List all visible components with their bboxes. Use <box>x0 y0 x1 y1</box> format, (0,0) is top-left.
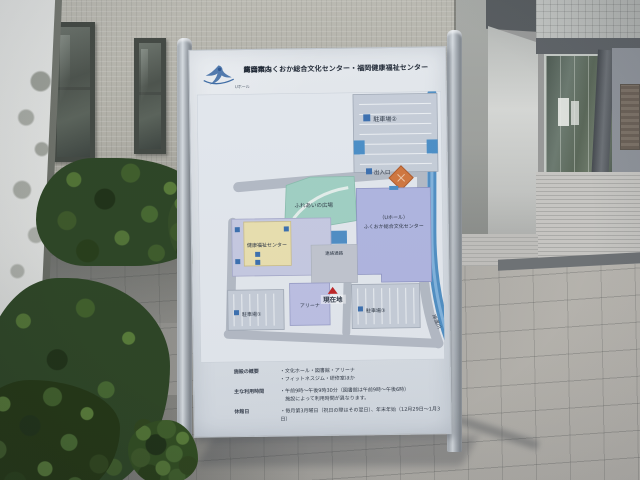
window-reflection <box>60 35 70 113</box>
map-entrance-label: 出入口 <box>374 168 391 176</box>
map-arena-label: アリーナ <box>300 303 320 309</box>
bird-logo-icon <box>198 60 238 93</box>
map-main-building-label2: ふくおか総合文化センター <box>364 223 424 231</box>
vent-louver-panel <box>620 84 640 150</box>
window-reflection <box>141 49 148 113</box>
info-label: 主な利用時間 <box>234 388 280 405</box>
entrance-ceiling-tiles <box>536 0 640 40</box>
sign-title-line2: 総合案内 <box>244 65 273 76</box>
door-poster <box>558 98 569 126</box>
info-label: 休館日 <box>234 408 280 425</box>
facility-info-table: 施設の概要 ・文化ホール・図書館・アリーナ ・フィットネスジム・研修室ほか 主な… <box>234 365 443 428</box>
map-parking1: 駐車場① <box>228 290 285 331</box>
map-parking3: 駐車場③ <box>352 284 421 329</box>
info-row-overview: 施設の概要 ・文化ホール・図書館・アリーナ ・フィットネスジム・研修室ほか <box>234 365 442 384</box>
info-value: ・午前9時〜午後9時30分（図書館は午前9時〜午後6時） 施設によって利用時間が… <box>280 385 442 403</box>
info-row-closed-days: 休館日 ・毎月第3月曜日（祝日の際はその翌日）、年末年始（12月29日〜1月3日… <box>234 405 442 424</box>
logo-caption: Uホール <box>235 84 250 90</box>
door-poster <box>571 101 579 125</box>
signboard-shadow <box>197 436 478 466</box>
map-arena: アリーナ <box>290 283 331 326</box>
map-health-center-label: 健康福祉センター <box>247 241 287 249</box>
entrance-overhang-shadow <box>486 0 540 32</box>
signboard-panel: Uホール 高岡市ふくおか総合文化センター・福岡健康福祉センター 総合案内 岸渡川 <box>188 46 451 438</box>
striped-entrance-apron <box>536 172 640 264</box>
right-wing-front-wall <box>488 26 538 234</box>
map-parking2-label: 駐車場② <box>373 115 397 123</box>
info-value: ・文化ホール・図書館・アリーナ ・フィットネスジム・研修室ほか <box>280 365 442 383</box>
map-parking1-label: 駐車場① <box>242 311 262 318</box>
site-map: 岸渡川 駐車場② 出入口 <box>197 91 445 362</box>
map-parking2: 駐車場② <box>353 93 438 172</box>
map-corridor: 連絡通路 <box>311 244 358 283</box>
photo-outdoor-sign-scene: Uホール 高岡市ふくおか総合文化センター・福岡健康福祉センター 総合案内 岸渡川 <box>0 0 640 480</box>
foreground-ivy-right <box>128 420 198 480</box>
info-value: ・毎月第3月曜日（祝日の際はその翌日）、年末年始（12月29日〜1月3日） <box>280 405 442 423</box>
building-window-right <box>134 38 166 154</box>
map-you-are-here-label: 現在地 <box>323 295 343 304</box>
map-parking3-label: 駐車場③ <box>366 307 386 314</box>
map-main-building-label1: （Uホール） <box>379 215 408 221</box>
info-label: 施設の概要 <box>234 368 280 385</box>
info-row-hours: 主な利用時間 ・午前9時〜午後9時30分（図書館は午前9時〜午後6時） 施設によ… <box>234 385 442 404</box>
